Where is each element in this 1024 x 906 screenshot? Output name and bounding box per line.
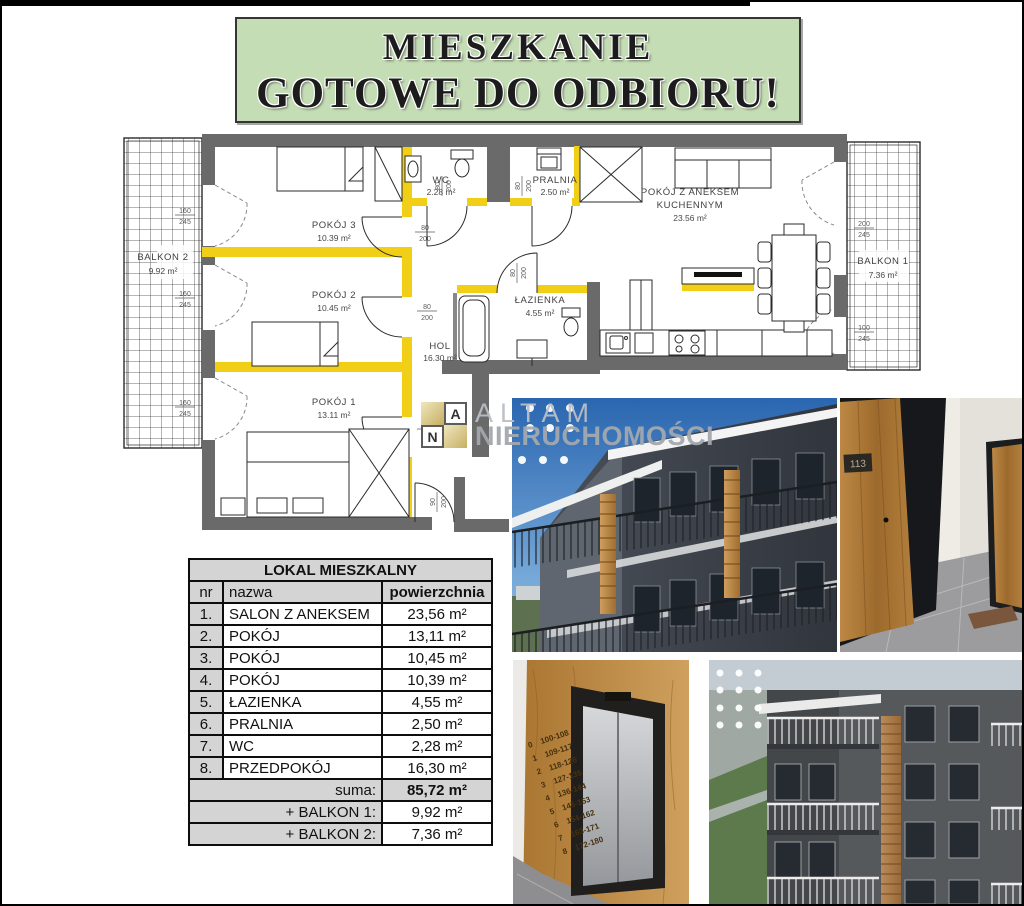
- balkon2-row-value: 7,36 m²: [382, 823, 492, 845]
- logo-letter-a: A: [444, 402, 467, 425]
- lazienka-area: 4.55 m²: [526, 308, 555, 318]
- agency-logo: A N: [421, 402, 467, 448]
- table-row: 7.WC2,28 m²: [189, 735, 492, 757]
- svg-text:160: 160: [179, 400, 191, 407]
- balkon2-label: BALKON 2: [137, 252, 188, 263]
- balkon1-row-label: + BALKON 1:: [189, 801, 382, 823]
- salon-label2: KUCHENNYM: [657, 200, 724, 211]
- svg-text:100: 100: [858, 325, 870, 332]
- photo-elevator: 0100-108 1109-117 2118-126 3127-135 4136…: [513, 660, 689, 904]
- svg-text:80: 80: [435, 182, 442, 190]
- salon-label1: POKÓJ Z ANEKSEM: [641, 187, 739, 198]
- table-row: 1.SALON Z ANEKSEM23,56 m²: [189, 603, 492, 625]
- banner-line1: MIESZKANIE: [237, 26, 799, 69]
- svg-text:80: 80: [421, 225, 429, 232]
- balkon2-area: 9.92 m²: [149, 266, 178, 276]
- svg-text:160: 160: [179, 208, 191, 215]
- svg-text:200: 200: [421, 315, 433, 322]
- table-row: 8.PRZEDPOKÓJ16,30 m²: [189, 757, 492, 779]
- svg-text:200: 200: [521, 267, 528, 279]
- hol-area: 16.30 m²: [423, 353, 457, 363]
- svg-text:80: 80: [510, 269, 517, 277]
- door-number-plate: 113: [843, 453, 872, 472]
- table-row: 3.POKÓJ10,45 m²: [189, 647, 492, 669]
- svg-text:245: 245: [858, 336, 870, 343]
- area-table: LOKAL MIESZKALNY nr nazwa powierzchnia 1…: [188, 558, 493, 846]
- balkon1-label: BALKON 1: [857, 256, 908, 267]
- svg-text:200: 200: [446, 180, 453, 192]
- photo-apartment-door: 113: [840, 398, 1024, 652]
- pralnia-label: PRALNIA: [533, 175, 578, 186]
- shaft: [580, 147, 642, 202]
- wood-slats: [881, 716, 901, 904]
- flyer-page: MIESZKANIE GOTOWE DO ODBIORU! BALKON 2 9…: [0, 0, 1024, 906]
- pokoj3-label: POKÓJ 3: [312, 220, 356, 231]
- pokoj2-label: POKÓJ 2: [312, 290, 356, 301]
- svg-text:80: 80: [423, 304, 431, 311]
- agency-watermark: A N ALTAM NIERUCHOMOŚCI: [421, 402, 714, 448]
- table-row: 4.POKÓJ10,39 m²: [189, 669, 492, 691]
- table-row: 5.ŁAZIENKA4,55 m²: [189, 691, 492, 713]
- logo-gold-square-2: [444, 425, 467, 448]
- col-name: nazwa: [223, 581, 382, 603]
- table-row: 2.POKÓJ13,11 m²: [189, 625, 492, 647]
- svg-text:245: 245: [179, 411, 191, 418]
- table-row: 6.PRALNIA2,50 m²: [189, 713, 492, 735]
- svg-text:245: 245: [858, 232, 870, 239]
- svg-text:160: 160: [179, 291, 191, 298]
- balkon2-row-label: + BALKON 2:: [189, 823, 382, 845]
- door-number: 113: [850, 459, 867, 471]
- pralnia-area: 2.50 m²: [541, 187, 570, 197]
- table-sum-row: suma:85,72 m²: [189, 779, 492, 801]
- pokoj3-area: 10.39 m²: [317, 233, 351, 243]
- pokoj1-area: 13.11 m²: [318, 410, 351, 420]
- lazienka-label: ŁAZIENKA: [515, 295, 566, 306]
- sum-value: 85,72 m²: [382, 779, 492, 801]
- logo-letter-n: N: [421, 425, 444, 448]
- photo-facade: [709, 660, 1024, 904]
- banner: MIESZKANIE GOTOWE DO ODBIORU!: [235, 17, 801, 123]
- table-balkon1-row: + BALKON 1:9,92 m²: [189, 801, 492, 823]
- salon-area: 23.56 m²: [673, 213, 707, 223]
- svg-text:200: 200: [441, 496, 448, 508]
- table-title: LOKAL MIESZKALNY: [189, 559, 492, 581]
- agency-name-line2: NIERUCHOMOŚCI: [475, 425, 714, 448]
- logo-gold-square: [421, 402, 444, 425]
- table-balkon2-row: + BALKON 2:7,36 m²: [189, 823, 492, 845]
- svg-text:200: 200: [858, 221, 870, 228]
- svg-text:90: 90: [430, 498, 437, 506]
- pokoj1-label: POKÓJ 1: [312, 397, 356, 408]
- col-nr: nr: [189, 581, 223, 603]
- top-border-bar: [2, 2, 750, 6]
- svg-text:245: 245: [179, 302, 191, 309]
- svg-text:200: 200: [526, 180, 533, 192]
- balkon1-area: 7.36 m²: [869, 270, 898, 280]
- svg-text:80: 80: [515, 182, 522, 190]
- table-header-row: nr nazwa powierzchnia: [189, 581, 492, 603]
- balkon1-row-value: 9,92 m²: [382, 801, 492, 823]
- hol-label: HOL: [429, 341, 450, 352]
- svg-text:200: 200: [419, 236, 431, 243]
- sum-label: suma:: [189, 779, 382, 801]
- col-area: powierzchnia: [382, 581, 492, 603]
- banner-line2: GOTOWE DO ODBIORU!: [237, 69, 799, 118]
- svg-text:245: 245: [179, 219, 191, 226]
- pokoj2-area: 10.45 m²: [317, 303, 351, 313]
